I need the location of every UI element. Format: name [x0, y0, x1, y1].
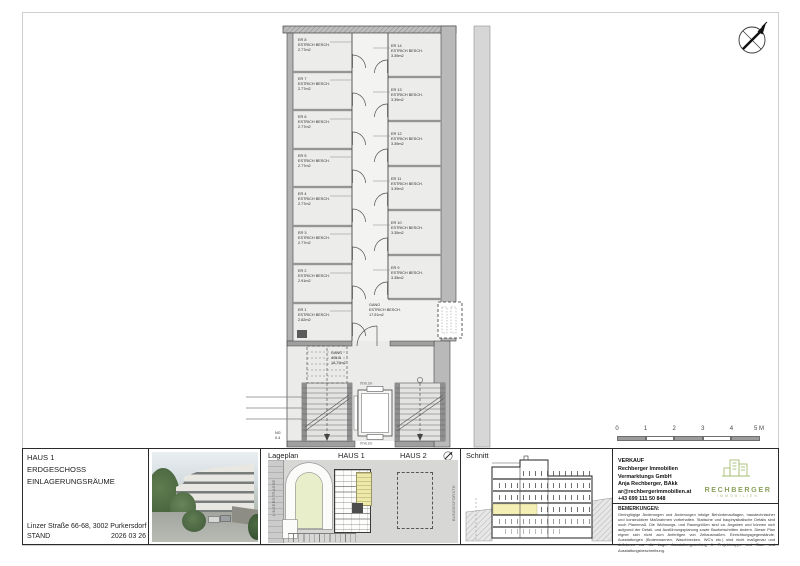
- lageplan-haus2-label: HAUS 2: [400, 451, 427, 460]
- shaft-dashed-box: [438, 302, 462, 338]
- siteplan-haus1-building: [334, 469, 371, 533]
- verkauf-company2: Vermarktungs GmbH: [618, 474, 691, 481]
- scale-tick-5m: 5 M: [754, 426, 774, 432]
- elevator-dim-bottom: 97x6.2m: [360, 442, 373, 446]
- verkauf-phone: +43 699 111 50 848: [618, 496, 691, 503]
- plan-sheet: 97x6.2m 97x6.2m: [0, 0, 800, 566]
- scale-segment: [731, 436, 760, 441]
- title-block-divider: [148, 448, 149, 545]
- verkauf-contact: Anja Rechberger, BAkk: [618, 481, 691, 488]
- room-label-er5: ER 5ESTRICH BESCH.2.77m2: [298, 154, 330, 169]
- rechberger-logo-icon: [718, 456, 758, 480]
- lageplan-haus1-label: HAUS 1: [338, 451, 365, 460]
- scale-tick-4: 4: [725, 426, 737, 432]
- project-level: ERDGESCHOSS: [27, 464, 115, 476]
- scale-tick-0: 0: [611, 426, 623, 432]
- project-address: Linzer Straße 66-68, 3002 Purkersdorf: [27, 523, 146, 530]
- rechberger-logo-name: RECHBERGER: [702, 485, 774, 494]
- scale-segment: [674, 436, 703, 441]
- title-block-divider: [612, 448, 613, 545]
- room-label-er3: ER 3ESTRICH BESCH.2.77m2: [298, 231, 330, 246]
- room-label-er6: ER 6ESTRICH BESCH.2.77m2: [298, 115, 330, 130]
- room-label-gang: GANGESTRICH BESCH.17.51m2: [369, 303, 401, 318]
- edge-cut-label: NG0.4: [275, 431, 281, 441]
- scale-tick-2: 2: [668, 426, 680, 432]
- verkauf-block: VERKAUF Rechberger Immobilien Vermarktun…: [618, 458, 691, 504]
- scale-tick-3: 3: [697, 426, 709, 432]
- scale-segment: [703, 436, 732, 441]
- bemerkungen-text: Geringfügige Änderungen und Änderungen i…: [618, 512, 775, 553]
- elevator-dim-top: 97x6.2m: [360, 382, 373, 386]
- room-label-er7: ER 7ESTRICH BESCH.2.77m2: [298, 77, 330, 92]
- room-label-er9: ER 9ESTRICH BESCH.3.35m2: [391, 266, 423, 281]
- scale-segment: [617, 436, 646, 441]
- title-block-divider: [460, 448, 461, 545]
- rechberger-logo-sub: IMMOBILIEN: [702, 494, 774, 498]
- scale-segment: [646, 436, 675, 441]
- siteplan-parking-ticks: [288, 533, 356, 542]
- verkauf-email: ar@rechbergerimmobilien.at: [618, 489, 691, 496]
- schnitt-label: Schnitt: [466, 451, 489, 460]
- north-arrow-icon: [739, 22, 767, 53]
- room-label-er11: ER 11ESTRICH BESCH.3.39m2: [391, 177, 423, 192]
- stair-right: [395, 377, 445, 441]
- room-label-er2: ER 2ESTRICH BESCH.2.91m2: [298, 269, 330, 284]
- lageplan-label: Lageplan: [268, 451, 298, 460]
- verkauf-company1: Rechberger Immobilien: [618, 466, 691, 473]
- siteplan-highlight-units: [356, 472, 372, 506]
- project-title: HAUS 1 ERDGESCHOSS EINLAGERUNGSRÄUME: [27, 452, 115, 488]
- rechberger-logo: RECHBERGER IMMOBILIEN: [702, 456, 774, 498]
- project-usage: EINLAGERUNGSRÄUME: [27, 476, 115, 488]
- siteplan-street-label: LINZERSTRASSE: [272, 480, 276, 516]
- photo-car: [208, 516, 220, 523]
- photo-car: [220, 515, 231, 522]
- photo-tree: [182, 510, 206, 532]
- stand-date: 2026 03 26: [111, 533, 146, 540]
- verkauf-heading: VERKAUF: [618, 458, 691, 465]
- elevator: 97x6.2m 97x6.2m: [354, 382, 392, 446]
- hall-label-gang-405b: GANG405.B18.79m2: [331, 351, 346, 366]
- stand-label: STAND: [27, 533, 50, 540]
- title-block-divider: [260, 448, 261, 545]
- room-label-er1: ER 1ESTRICH BESCH.2.82m2: [298, 308, 330, 323]
- room-label-er4: ER 4ESTRICH BESCH.2.77m2: [298, 192, 330, 207]
- siteplan-core: [352, 503, 363, 513]
- room-label-er8: ER 8ESTRICH BESCH.2.77m2: [298, 38, 330, 53]
- siteplan-street: [268, 460, 284, 543]
- room-label-er14: ER 14ESTRICH BESCH.3.39m2: [391, 44, 423, 59]
- room-label-er12: ER 12ESTRICH BESCH.3.39m2: [391, 132, 423, 147]
- project-haus: HAUS 1: [27, 452, 115, 464]
- siteplan-forest-label: BUNDESFORSTE: [452, 485, 456, 521]
- room-label-er10: ER 10ESTRICH BESCH.3.35m2: [391, 221, 423, 236]
- siteplan-haus2-outline: [397, 472, 433, 529]
- building-photo: [152, 452, 258, 542]
- scale-tick-1: 1: [640, 426, 652, 432]
- stand-row: STAND 2026 03 26: [27, 533, 146, 540]
- room-label-er13: ER 13ESTRICH BESCH.3.39m2: [391, 88, 423, 103]
